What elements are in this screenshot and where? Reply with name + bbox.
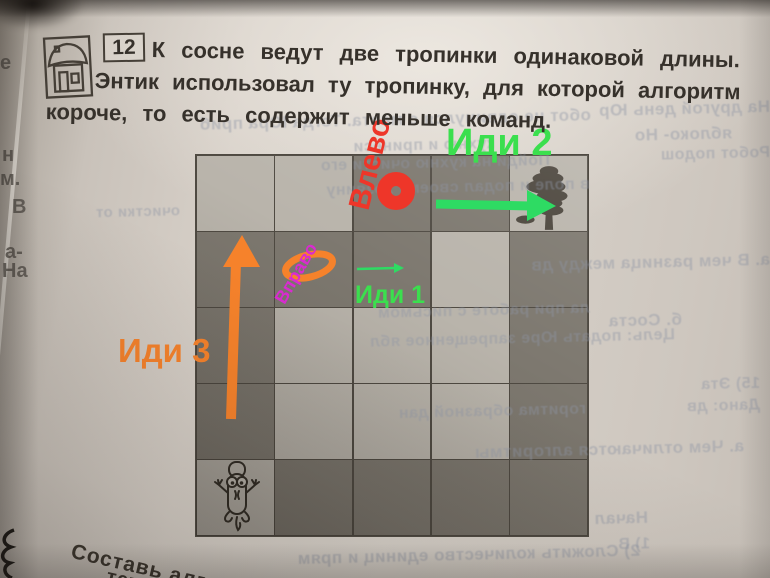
title-line-2: Энтик использовал ту тропинку, для котор… — [95, 68, 741, 105]
title-line-3: короче, то есть содержит меньше команд. — [46, 99, 552, 134]
task-number: 12 — [112, 35, 136, 59]
house-icon — [42, 35, 93, 99]
task-header: 12 К сосне ведут две тропинки одинаковой… — [0, 0, 770, 578]
workbook-page-photo: На другой день Юробот не сдвинулся с мес… — [0, 0, 770, 578]
task-number-box: 12 — [103, 33, 145, 63]
title-line-1: К сосне ведут две тропинки одинаковой дл… — [152, 37, 740, 73]
